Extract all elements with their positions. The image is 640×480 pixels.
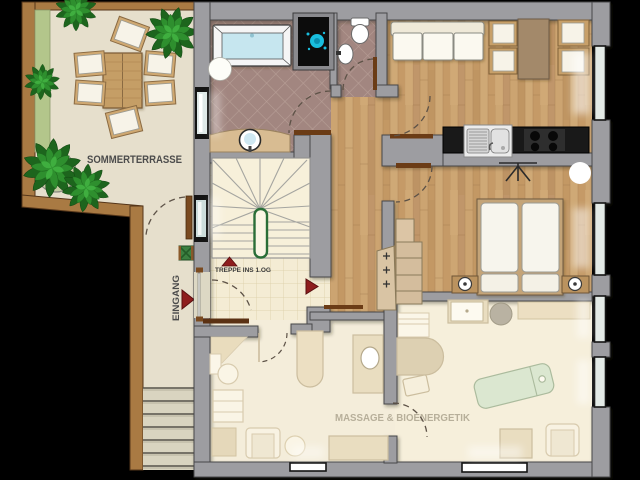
svg-text:EINGANG: EINGANG xyxy=(171,275,182,321)
svg-text:TREPPE INS 1.OG: TREPPE INS 1.OG xyxy=(215,267,271,274)
svg-text:MASSAGE & BIOENERGETIK: MASSAGE & BIOENERGETIK xyxy=(335,413,471,424)
svg-text:SOMMERTERRASSE: SOMMERTERRASSE xyxy=(87,154,182,166)
